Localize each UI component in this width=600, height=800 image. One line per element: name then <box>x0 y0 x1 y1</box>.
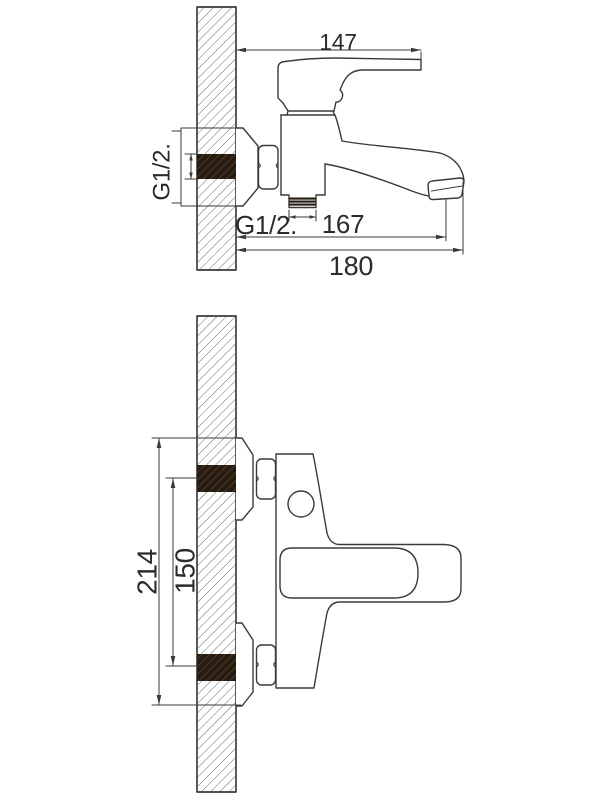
dim-147-label: 147 <box>319 29 356 55</box>
wall-section-side <box>197 7 236 270</box>
wall-section-plan <box>197 316 236 792</box>
dim-150-label: 150 <box>170 548 201 594</box>
faucet-dimension-drawing: 147 G1/2. G1/2. 167 180 214 150 <box>0 0 600 800</box>
eccentric-adapter-bottom <box>236 623 253 706</box>
eccentric-adapter-top <box>236 438 253 520</box>
body-spout-top-edge <box>281 115 464 180</box>
drawing-page: 147 G1/2. G1/2. 167 180 214 150 <box>0 0 600 800</box>
shower-outlet <box>289 196 316 208</box>
lever-handle-side <box>278 58 421 115</box>
dim-214-label: 214 <box>132 549 163 595</box>
connection-nut-top <box>257 459 276 499</box>
dim-167-label: 167 <box>322 209 364 239</box>
faucet-body-plan <box>276 454 461 688</box>
eccentric-adapter-side <box>236 128 258 206</box>
dim-180-label: 180 <box>329 251 373 281</box>
dim-g12-wall-label: G1/2. <box>149 143 176 200</box>
dim-g12-outlet-label: G1/2. <box>235 210 297 240</box>
connection-nut-bottom <box>257 645 276 685</box>
dimension-labels: 147 G1/2. G1/2. 167 180 214 150 <box>132 29 374 595</box>
spout-underside <box>325 164 429 196</box>
faucet-body-side <box>281 115 464 208</box>
side-view <box>172 7 464 270</box>
aerator <box>428 178 464 200</box>
connection-nut-side <box>259 146 279 190</box>
